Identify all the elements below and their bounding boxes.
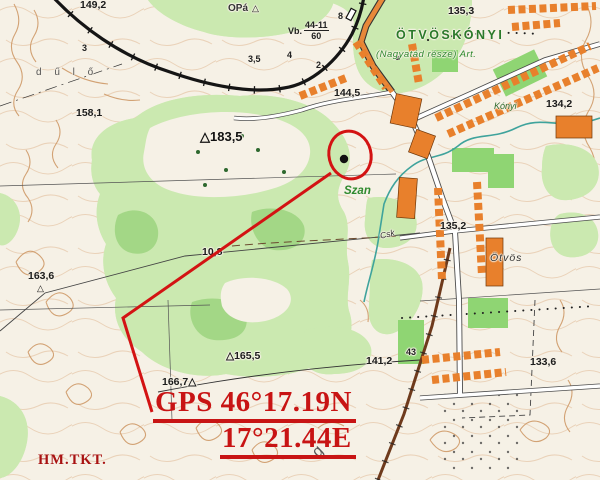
bridge-marker-prefix: Vb. <box>288 26 302 36</box>
spot-height-1835: △183,5 <box>200 130 243 143</box>
triangle-icon: △ <box>252 4 259 13</box>
op-marker-label: OPá <box>228 4 248 14</box>
topographic-map: 149,2 135,3 158,1 144,5 △183,5 134,2 135… <box>0 0 600 480</box>
orchard-area <box>438 392 522 470</box>
rail-marker-4: 4 <box>287 51 292 60</box>
spot-height-1353: 135,3 <box>448 6 474 17</box>
district-label-otvos: Ötvös <box>490 253 522 264</box>
spot-height-1492: 149,2 <box>80 0 106 11</box>
spot-height-1581: 158,1 <box>76 108 102 119</box>
rail-marker-2: 2 <box>316 61 321 70</box>
spot-height-1445: 144,5 <box>334 88 360 99</box>
spot-height-1655: △165,5 <box>226 351 260 362</box>
gps-coordinate-line1: GPS 46°17.19N <box>153 388 356 423</box>
village-name: ÖTVÖSKÓNYI <box>396 29 504 42</box>
rail-marker-8: 8 <box>338 12 343 21</box>
bridge-marker-number: 44-11 <box>304 20 329 31</box>
spot-height-1412: 141,2 <box>366 356 392 367</box>
spot-height-1336: 133,6 <box>530 357 556 368</box>
spot-height-1636: 163,6 <box>28 271 54 282</box>
farm-label-szan: Szan <box>344 186 371 198</box>
triangulation-station-icon: △ <box>37 284 44 293</box>
bridge-marker: Vb. 44-11 60 <box>288 20 329 41</box>
spot-height-108: 10,8 <box>202 247 222 258</box>
field-label-dulo: d ű l ő <box>36 68 98 78</box>
spot-height-1352: 135,2 <box>440 221 466 232</box>
district-label-konyi: Kónyi <box>494 102 517 111</box>
gps-coordinate-line2: 17°21.44E <box>220 424 356 459</box>
village-subtitle: (Nagyatád része) Art. <box>376 50 476 60</box>
bridge-marker-width: 60 <box>304 31 329 41</box>
map-credit: HM.TKT. <box>38 452 107 469</box>
road-marker-43: 43 <box>406 348 416 357</box>
rail-marker-35: 3,5 <box>248 55 261 64</box>
rail-marker-3: 3 <box>82 44 87 53</box>
spot-height-1342: 134,2 <box>546 99 572 110</box>
